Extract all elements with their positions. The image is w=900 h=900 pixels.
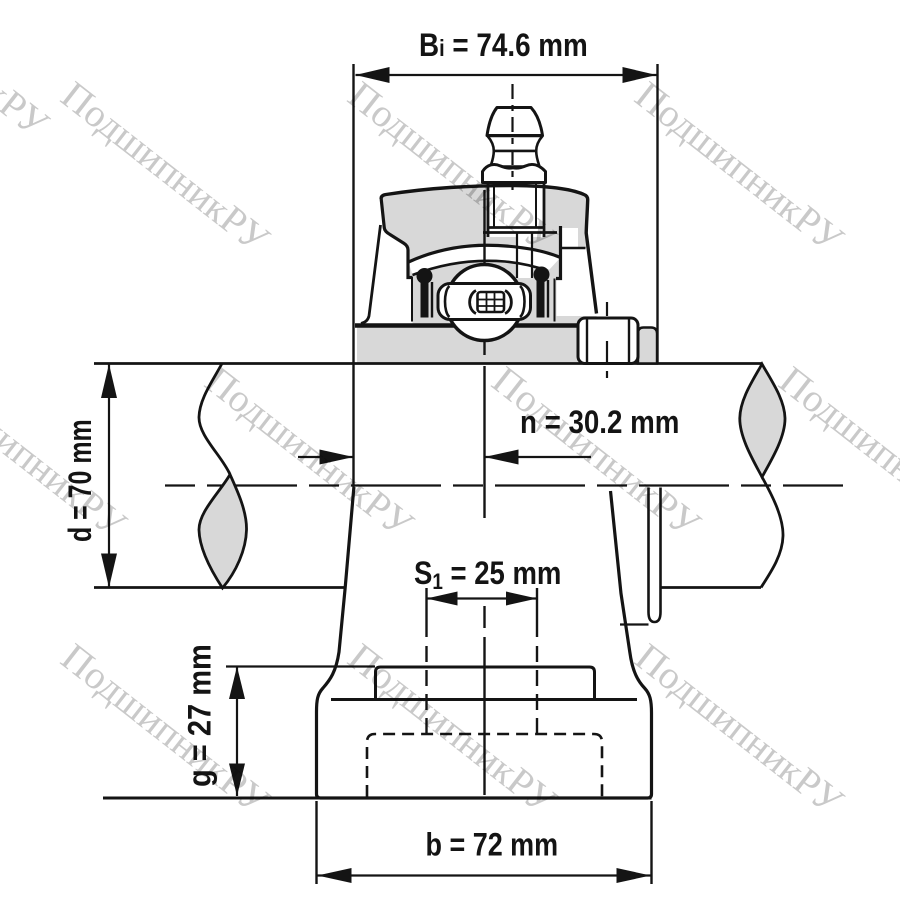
svg-text:ПодшипникРУ: ПодшипникРУ — [53, 73, 277, 262]
svg-text:ПодшипникРУ: ПодшипникРУ — [771, 358, 900, 547]
svg-text:ПодшипникРУ: ПодшипникРУ — [53, 635, 277, 824]
svg-text:Bi = 74.6 mm: Bi = 74.6 mm — [419, 28, 588, 63]
svg-text:ПодшипникРУ: ПодшипникРУ — [627, 73, 851, 262]
svg-text:ПодшипникРУ: ПодшипникРУ — [0, 0, 57, 146]
svg-text:b = 72 mm: b = 72 mm — [426, 827, 559, 863]
svg-text:ПодшипникРУ: ПодшипникРУ — [627, 635, 851, 824]
svg-text:ПодшипникРУ: ПодшипникРУ — [340, 635, 564, 824]
svg-text:S1 = 25 mm: S1 = 25 mm — [414, 556, 561, 594]
